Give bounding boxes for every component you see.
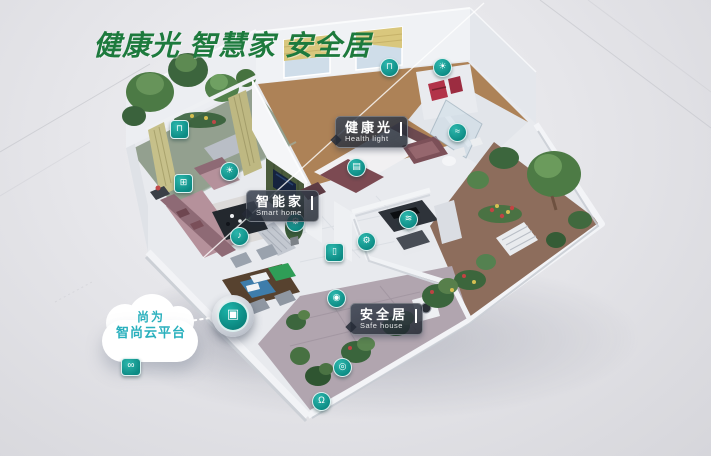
curtain-icon[interactable]: ⊓ [380,58,399,77]
ceiling-light-icon[interactable]: ☀ [433,58,452,77]
label-health-light-zh: 健康光 [345,120,393,135]
gateway-hub[interactable]: ▣ [212,295,254,337]
sensor-icon[interactable]: ◉ [327,289,346,308]
promo-scene: 健康光 智慧家 安全居 健康光 Health light 智能家 Smart h… [0,0,711,456]
window-icon[interactable]: ⊞ [174,174,193,193]
text-cursor [400,122,402,136]
curtain-icon[interactable]: ⊓ [170,120,189,139]
lock-icon[interactable]: Ω [312,392,331,411]
cloud-platform: 尚为 智尚云平台 [96,294,206,368]
voice-speaker-icon[interactable]: ♪ [230,227,249,246]
label-safe-house-en: Safe house [360,322,408,330]
page-title: 健康光 智慧家 安全居 [93,24,372,64]
house-illustration [0,0,711,456]
switch-panel-icon[interactable]: ▤ [347,158,366,177]
label-health-light-en: Health light [345,135,393,143]
cloud-brand: 尚为 [96,310,206,325]
label-smart-home[interactable]: 智能家 Smart home [246,190,319,222]
camera-icon[interactable]: ◎ [333,358,352,377]
label-health-light[interactable]: 健康光 Health light [335,116,408,148]
gear-icon[interactable]: ⚙ [357,232,376,251]
text-cursor [311,196,313,210]
label-smart-home-zh: 智能家 [256,194,304,209]
link-icon[interactable]: ∞ [121,358,141,376]
water-icon[interactable]: ≈ [448,123,467,142]
wifi-icon[interactable]: ≋ [399,210,418,229]
text-cursor [415,309,417,323]
label-safe-house[interactable]: 安全居 Safe house [350,303,423,335]
gateway-hub-icon: ▣ [217,300,249,332]
cloud-platform-label: 智尚云平台 [96,325,206,341]
cloud-platform-name: 尚为 智尚云平台 [96,310,206,341]
label-smart-home-en: Smart home [256,209,304,217]
door-icon[interactable]: ▯ [325,243,344,262]
ceiling-light-icon[interactable]: ☀ [220,162,239,181]
label-safe-house-zh: 安全居 [360,307,408,322]
